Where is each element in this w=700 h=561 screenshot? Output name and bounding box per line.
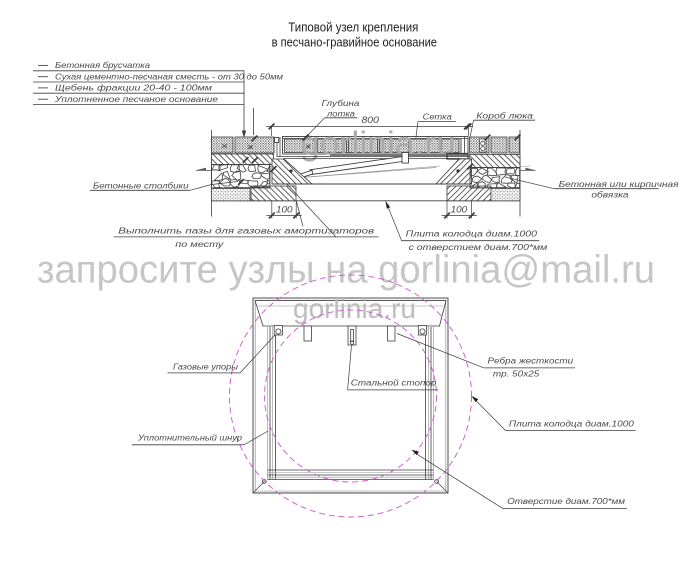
svg-text:Типовой узел крепления: Типовой узел крепления <box>288 19 418 34</box>
svg-text:Плита колодца диам.1000: Плита колодца диам.1000 <box>406 229 538 239</box>
svg-text:Уплотнительный шнур: Уплотнительный шнур <box>137 432 243 442</box>
svg-text:в песчано-гравийное основание: в песчано-гравийное основание <box>272 35 437 50</box>
svg-text:Бетонные столбики: Бетонные столбики <box>93 180 189 190</box>
svg-text:Бетонная или кирпичная: Бетонная или кирпичная <box>559 179 680 189</box>
svg-text:Ребра жесткости: Ребра жесткости <box>488 356 574 366</box>
svg-text:Бетонная брусчатка: Бетонная брусчатка <box>55 60 150 70</box>
svg-text:800: 800 <box>362 115 380 125</box>
svg-text:Короб люка: Короб люка <box>476 110 533 120</box>
svg-text:запросите узлы на gorlinia@mai: запросите узлы на gorlinia@mail.ru <box>37 249 655 292</box>
svg-text:100: 100 <box>276 204 293 214</box>
svg-text:Выполнить пазы для газовых амо: Выполнить пазы для газовых амортизаторов <box>118 226 375 236</box>
svg-text:Сухая цементно-песчаная сместь: Сухая цементно-песчаная сместь - от 30 д… <box>55 72 283 82</box>
svg-text:100: 100 <box>451 204 468 214</box>
svg-text:Сетка: Сетка <box>423 111 453 121</box>
svg-text:Глубина: Глубина <box>322 98 360 108</box>
svg-text:лотка: лотка <box>326 108 356 118</box>
svg-text:Стальной стопор: Стальной стопор <box>351 378 437 388</box>
svg-text:Щебень фракции 20-40 - 100мм: Щебень фракции 20-40 - 100мм <box>55 83 212 93</box>
svg-text:Отверстие диам.700*мм: Отверстие диам.700*мм <box>507 496 625 506</box>
svg-text:Газовые упоры: Газовые упоры <box>173 361 238 371</box>
svg-text:по месту: по месту <box>175 239 224 249</box>
svg-text:обвязка: обвязка <box>591 190 629 200</box>
svg-text:тр. 50х25: тр. 50х25 <box>493 369 540 379</box>
svg-text:Плита колодца диам.1000: Плита колодца диам.1000 <box>509 418 634 428</box>
svg-text:Уплотненное песчаное основание: Уплотненное песчаное основание <box>54 94 219 104</box>
